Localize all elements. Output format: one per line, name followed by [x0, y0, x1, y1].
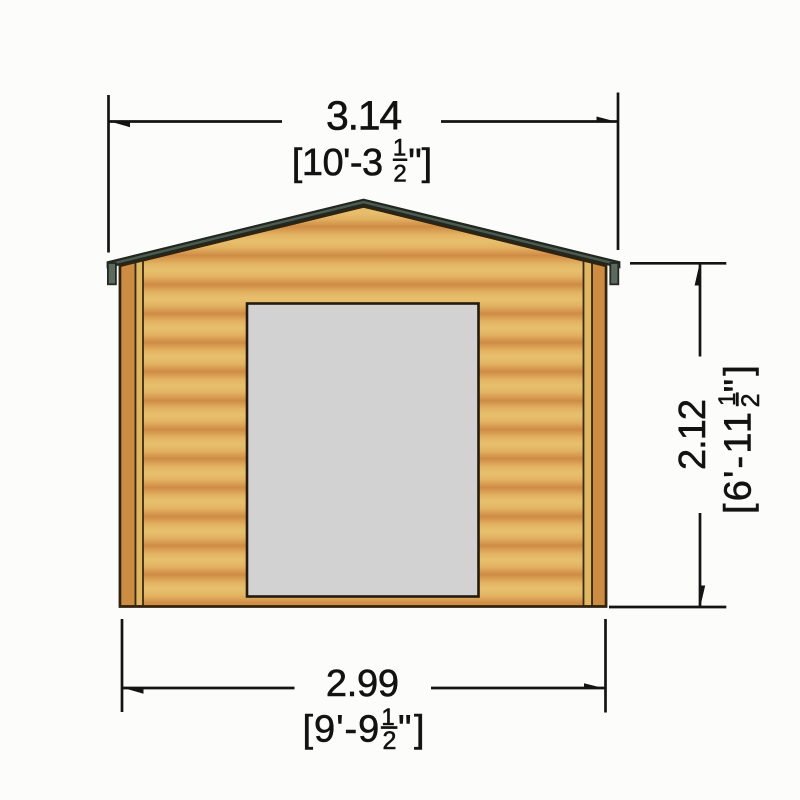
svg-text:2.12: 2.12 [672, 400, 714, 470]
svg-text:": " [408, 142, 422, 184]
svg-text:1: 1 [393, 135, 406, 162]
svg-text:2: 2 [393, 161, 406, 188]
svg-text:]: ] [414, 709, 425, 751]
svg-text:2: 2 [383, 727, 397, 755]
svg-text:2: 2 [737, 393, 765, 407]
svg-text:3.14: 3.14 [326, 93, 401, 139]
svg-text:": " [398, 709, 412, 751]
svg-text:2.99: 2.99 [326, 663, 399, 705]
svg-text:[6'-11: [6'-11 [718, 410, 760, 514]
svg-text:]: ] [422, 142, 433, 184]
svg-text:[10'-3: [10'-3 [292, 142, 383, 184]
svg-text:[9'-9: [9'-9 [303, 709, 381, 751]
svg-text:]: ] [718, 365, 760, 376]
svg-text:": " [718, 379, 760, 393]
